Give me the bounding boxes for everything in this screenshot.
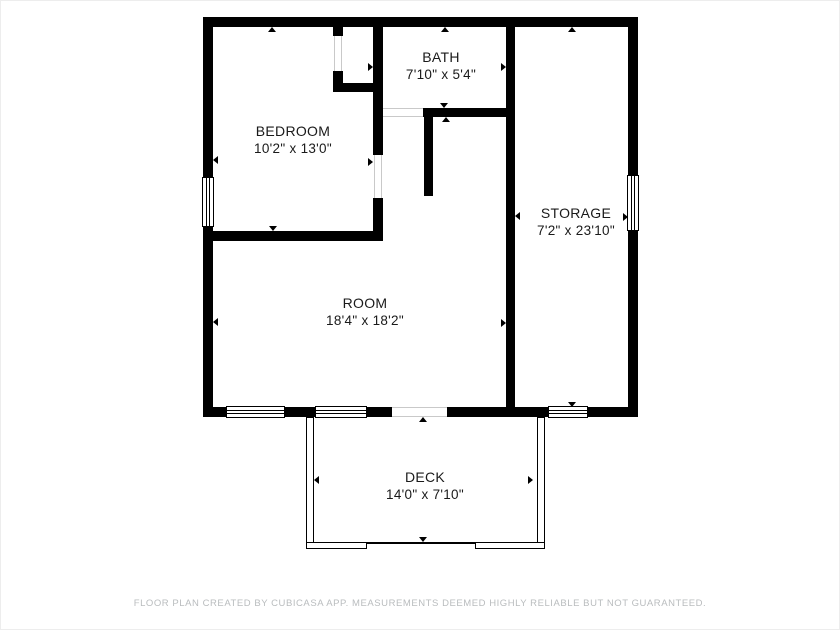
window-right-wall (627, 175, 639, 231)
room-label-room: ROOM 18'4" x 18'2" (326, 294, 404, 330)
wall-tick (568, 402, 576, 407)
deck-railing-right (537, 417, 545, 549)
wall-storage-left (506, 27, 515, 407)
room-label-deck: DECK 14'0" x 7'10" (386, 468, 464, 504)
room-label-bedroom: BEDROOM 10'2" x 13'0" (254, 122, 332, 158)
door-opening-edge-bath-top (383, 108, 423, 109)
window-pane (631, 176, 635, 230)
window-pane (206, 178, 210, 226)
wall-tick (269, 226, 277, 231)
room-dimensions: 14'0" x 7'10" (386, 486, 464, 504)
window-pane (549, 410, 587, 414)
footer-disclaimer: FLOOR PLAN CREATED BY CUBICASA APP. MEAS… (0, 598, 840, 609)
window-bottom-1 (226, 406, 285, 418)
wall-tick (213, 318, 218, 326)
wall-bedroom-bottom (203, 231, 383, 241)
room-name: DECK (386, 468, 464, 486)
deck-railing-left (306, 417, 314, 549)
window-bottom-2 (315, 406, 367, 418)
room-label-storage: STORAGE 7'2" x 23'10" (537, 204, 615, 240)
wall-tick (442, 117, 450, 122)
wall-tick (440, 103, 448, 108)
room-dimensions: 7'10" x 5'4" (406, 66, 476, 84)
window-pane (227, 410, 284, 414)
wall-closet-stub (333, 27, 343, 36)
wall-tick (268, 27, 276, 32)
room-dimensions: 10'2" x 13'0" (254, 140, 332, 158)
room-dimensions: 18'4" x 18'2" (326, 312, 404, 330)
wall-hall-stub (424, 117, 433, 196)
wall-exterior-bottom-seg4 (447, 407, 548, 417)
wall-exterior-top (203, 17, 638, 27)
wall-bath-bottom (423, 108, 515, 117)
wall-tick (419, 417, 427, 422)
wall-exterior-bottom-seg5 (588, 407, 638, 417)
room-name: BEDROOM (254, 122, 332, 140)
door-opening-edge-closet-left (334, 36, 335, 71)
floor-plan: BATH 7'10" x 5'4" BEDROOM 10'2" x 13'0" … (0, 0, 840, 630)
window-bottom-3 (548, 406, 588, 418)
wall-tick (213, 156, 218, 164)
wall-tick (419, 537, 427, 542)
wall-tick (528, 476, 533, 484)
wall-tick (314, 476, 319, 484)
wall-tick (501, 319, 506, 327)
wall-closet-bottom (333, 83, 375, 92)
wall-exterior-bottom-seg3 (367, 407, 392, 417)
door-opening-edge-bedroom-left (374, 155, 375, 198)
wall-exterior-bottom-seg1 (203, 407, 226, 417)
wall-exterior-bottom-seg2 (285, 407, 315, 417)
window-pane (316, 410, 366, 414)
wall-tick (441, 27, 449, 32)
wall-tick (501, 63, 506, 71)
room-name: STORAGE (537, 204, 615, 222)
door-opening-edge-bedroom-right (381, 155, 382, 198)
deck-railing-bottom-left (306, 542, 367, 549)
wall-tick (515, 212, 520, 220)
deck-railing-bottom-right (475, 542, 545, 549)
wall-tick (623, 213, 628, 221)
door-opening-edge-bath-bottom (383, 116, 423, 117)
deck-opening-line (367, 542, 475, 544)
door-opening-edge-closet-right (341, 36, 342, 71)
room-name: BATH (406, 48, 476, 66)
wall-tick (568, 27, 576, 32)
room-label-bath: BATH 7'10" x 5'4" (406, 48, 476, 84)
room-dimensions: 7'2" x 23'10" (537, 222, 615, 240)
room-name: ROOM (326, 294, 404, 312)
wall-tick (368, 158, 373, 166)
door-opening-edge-deck-top (392, 407, 447, 408)
window-left-wall (202, 177, 214, 227)
wall-tick (368, 63, 373, 71)
